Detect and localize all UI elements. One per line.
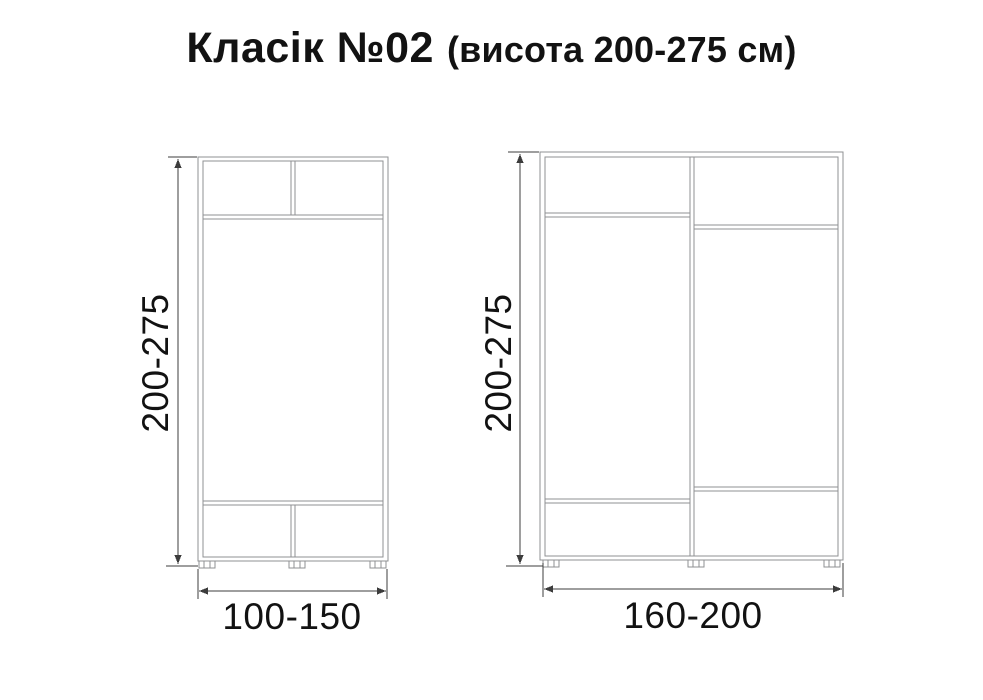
right-cabinet-height-label: 200-275: [478, 293, 520, 432]
right-cabinet-center-divider: [690, 157, 694, 556]
right-cabinet-foot-right: [824, 560, 840, 567]
right-cabinet-drawing: [540, 152, 843, 567]
left-cabinet-foot-right: [370, 561, 386, 568]
left-cabinet-top-shelf: [203, 215, 383, 219]
left-cabinet-foot-center: [289, 561, 305, 568]
right-cabinet-foot-center: [688, 560, 704, 567]
left-cabinet-bottom-shelf: [203, 501, 383, 505]
left-cabinet-inner-frame: [203, 161, 383, 557]
right-cabinet-left-top-shelf: [545, 213, 690, 217]
left-cabinet-foot-left: [199, 561, 215, 568]
diagram-page: Класік №02 (висота 200-275 см): [0, 0, 983, 700]
right-cabinet-width-label: 160-200: [623, 595, 762, 637]
right-cabinet-right-bottom-shelf: [694, 487, 838, 491]
left-cabinet-bottom-divider: [291, 505, 295, 557]
left-cabinet-outer-frame: [198, 157, 388, 561]
right-width-dimension: [543, 563, 843, 597]
left-cabinet-width-label: 100-150: [222, 596, 361, 638]
right-cabinet-left-bottom-shelf: [545, 499, 690, 503]
right-cabinet-foot-left: [543, 560, 559, 567]
left-cabinet-top-divider: [291, 161, 295, 215]
left-cabinet-drawing: [198, 157, 388, 568]
right-cabinet-right-top-shelf: [694, 225, 838, 229]
left-cabinet-height-label: 200-275: [135, 293, 177, 432]
left-width-dimension: [198, 569, 387, 599]
